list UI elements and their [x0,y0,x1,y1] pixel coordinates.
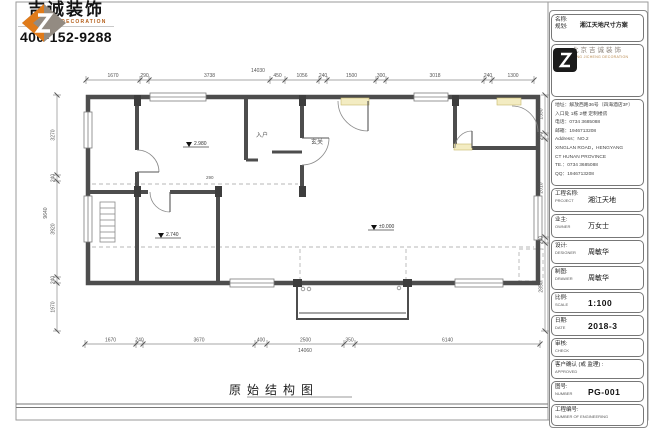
address-line: 地址：解放西路36号（四海酒店3F） [555,102,640,111]
titleblock-row-project: 工程名称: PROJECT 湘江天地 [551,188,644,212]
svg-text:240: 240 [135,338,144,344]
svg-text:1056: 1056 [296,73,307,79]
svg-text:1500: 1500 [346,73,357,79]
svg-text:2.980: 2.980 [194,141,207,147]
svg-text:290: 290 [140,73,149,79]
name-label-line1: 名称: [555,17,568,24]
address-line: 电话：0734 3685088 [555,119,640,128]
svg-text:400: 400 [257,338,266,344]
svg-text:1300: 1300 [507,73,518,79]
row-value: 周敏华 [588,247,609,257]
titleblock-name-row: 名称: 规划: 湘江天地尺寸方案 [551,14,644,42]
svg-text:240: 240 [319,73,328,79]
svg-text:1670: 1670 [105,338,116,344]
svg-text:入户: 入户 [256,131,268,139]
address-line: 邮箱：1946713208 [555,128,640,137]
svg-text:14060: 14060 [298,348,312,354]
svg-text:240: 240 [539,236,545,245]
address-line: TE.：0734 3685088 [555,162,640,171]
row-value: PG-001 [588,387,620,397]
titleblock-row-date: 日期: DATE 2018-3 [551,315,644,336]
svg-text:2850: 2850 [539,281,545,292]
svg-text:350: 350 [345,338,354,344]
doors [137,98,538,212]
company-header: 吉诚装饰 JI CHENG DECORATION 400-152-9288 [18,2,114,45]
row-value: 万女士 [588,221,609,231]
row-label-en: CHECK [555,348,640,353]
svg-text:3738: 3738 [204,73,215,79]
company-logo-icon [18,2,70,44]
level-marker: 2.980 [183,141,209,147]
svg-text:2010: 2010 [539,182,545,193]
row-label-en: APPROVED [555,369,640,374]
svg-text:300: 300 [377,73,386,79]
titleblock-row-scale: 比例: SCALE 1:100 [551,292,644,313]
titleblock-row-engineering: 工程编号: NUMBER OF ENGINEERING [551,404,644,426]
row-value: 1:100 [588,298,612,308]
svg-text:1670: 1670 [107,73,118,79]
svg-text:1590: 1590 [539,108,545,119]
svg-text:9640: 9640 [43,207,49,218]
row-value: 周敏华 [588,273,609,283]
svg-text:450: 450 [273,73,282,79]
windows [84,93,542,287]
titleblock-logo-box: 北京吉诚装饰 BEIJING JICHENG DECORATION [551,44,644,97]
svg-text:2.740: 2.740 [166,232,179,238]
svg-text:3270: 3270 [51,129,57,140]
svg-text:1970: 1970 [51,301,57,312]
address-line: CT HUNAN PROVINCE [555,154,640,163]
svg-text:6140: 6140 [442,338,453,344]
svg-text:290: 290 [206,175,214,180]
titleblock-address-box: 地址：解放西路36号（四海酒店3F） 入口处 1栋 2楼 定制楼房 电话：073… [551,99,644,186]
address-line: QQ：1946713208 [555,171,640,180]
svg-text:240: 240 [539,132,545,141]
titleblock-row-designer: 设计: DESIGNER 周敏华 [551,240,644,264]
address-line: 入口处 1栋 2楼 定制楼房 [555,111,640,120]
row-value: 湘江天地 [588,195,616,205]
svg-text:±0.000: ±0.000 [379,224,394,230]
address-line: XINGLAN ROAD，HENGYANG [555,145,640,154]
name-label-line2: 规划: [555,24,568,31]
dimension-chains: 1670290373845010562401500300301824013001… [51,73,550,348]
beam-dashed-lines [92,184,543,281]
row-label-en: NUMBER OF ENGINEERING [555,414,640,419]
svg-text:240: 240 [51,174,57,183]
svg-text:240: 240 [484,73,493,79]
titleblock-row-drawer: 制图: DRAWER 周敏华 [551,266,644,290]
row-value: 2018-3 [588,321,617,331]
svg-text:3920: 3920 [51,223,57,234]
titleblock-logo-icon [552,47,578,73]
level-marker: 2.740 [155,232,181,238]
svg-text:3018: 3018 [429,73,440,79]
titleblock-row-owner: 业主: OWNER 万女士 [551,214,644,238]
titleblock-row-number: 图号: NUMBER PG-001 [551,381,644,402]
elevation-markers: 2.980 2.740 ±0.000 [155,141,394,238]
titleblock-row-check: 审核: CHECK [551,338,644,357]
level-marker: ±0.000 [368,224,394,230]
drawing-title: 原始结构图 [0,381,548,398]
titleblock-row-approved: 客户确认 (或 监理) : APPROVED [551,359,644,379]
svg-text:玄关: 玄关 [311,138,323,146]
drawing-sheet: 2.980 2.740 ±0.000 入户 玄关 290 16702903738… [0,0,650,433]
svg-text:14030: 14030 [251,68,265,74]
address-line: Address：NO.2 [555,136,640,145]
svg-text:240: 240 [51,276,57,285]
svg-text:2500: 2500 [300,338,311,344]
svg-text:3670: 3670 [193,338,204,344]
fixtures [100,202,401,291]
overall-dimensions: 14030 14060 9640 [43,68,312,354]
